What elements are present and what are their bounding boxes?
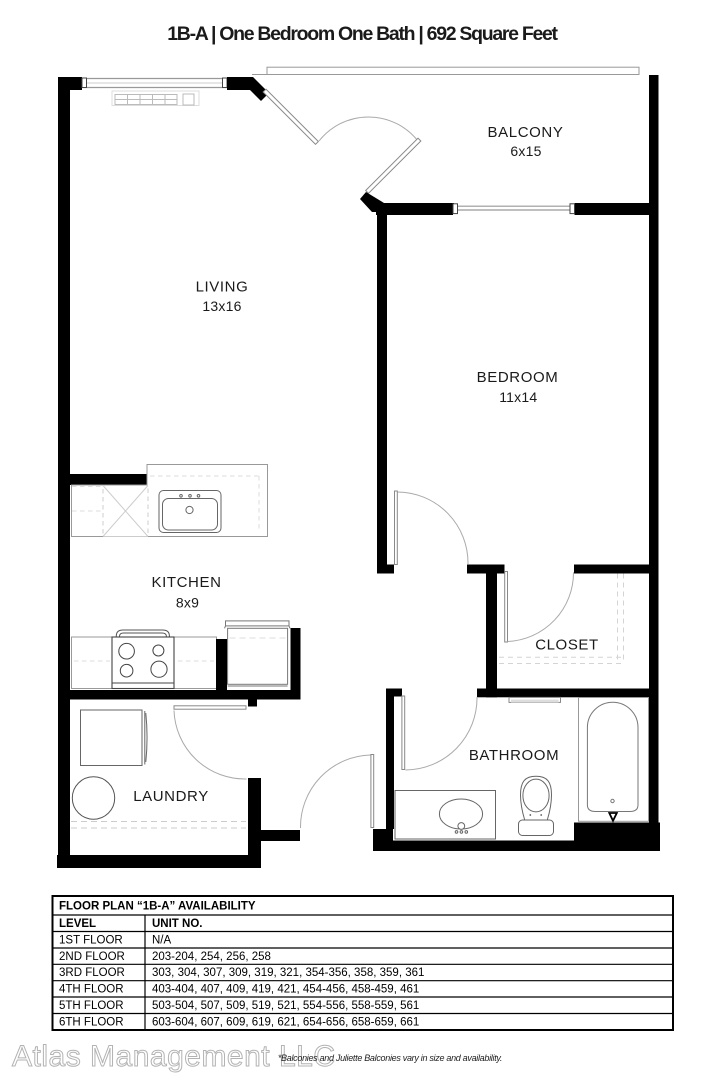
svg-text:LIVING: LIVING [196, 279, 249, 296]
svg-text:LEVEL: LEVEL [59, 918, 96, 930]
svg-text:UNIT NO.: UNIT NO. [152, 918, 202, 930]
svg-text:1ST FLOOR: 1ST FLOOR [59, 935, 123, 947]
svg-text:KITCHEN: KITCHEN [151, 574, 221, 591]
svg-text:6TH FLOOR: 6TH FLOOR [59, 1016, 124, 1028]
svg-text:*Balconies and Juliette Balcon: *Balconies and Juliette Balconies vary i… [278, 1053, 502, 1063]
svg-text:13x16: 13x16 [202, 298, 241, 314]
svg-text:5TH FLOOR: 5TH FLOOR [59, 1000, 124, 1012]
svg-text:BEDROOM: BEDROOM [477, 369, 559, 386]
svg-text:LAUNDRY: LAUNDRY [133, 788, 209, 805]
svg-text:203-204, 254, 256, 258: 203-204, 254, 256, 258 [152, 951, 271, 963]
svg-text:2ND FLOOR: 2ND FLOOR [59, 951, 125, 963]
svg-text:11x14: 11x14 [499, 389, 537, 405]
svg-text:4TH FLOOR: 4TH FLOOR [59, 984, 124, 996]
svg-text:BATHROOM: BATHROOM [469, 747, 559, 764]
svg-text:CLOSET: CLOSET [535, 637, 599, 654]
svg-text:403-404, 407, 409, 419, 421, 4: 403-404, 407, 409, 419, 421, 454-456, 45… [152, 984, 419, 996]
svg-text:603-604, 607, 609, 619, 621, 6: 603-604, 607, 609, 619, 621, 654-656, 65… [152, 1016, 419, 1028]
svg-text:3RD FLOOR: 3RD FLOOR [59, 967, 125, 979]
svg-text:BALCONY: BALCONY [488, 124, 564, 141]
svg-text:303, 304, 307, 309, 319, 321,: 303, 304, 307, 309, 319, 321, 354-356, 3… [152, 967, 424, 979]
svg-text:503-504, 507, 509, 519, 521, 5: 503-504, 507, 509, 519, 521, 554-556, 55… [152, 1000, 419, 1012]
svg-text:6x15: 6x15 [510, 143, 541, 159]
svg-text:1B-A | One Bedroom One Bath |: 1B-A | One Bedroom One Bath | 692 Square… [167, 23, 558, 45]
svg-text:N/A: N/A [152, 935, 172, 947]
svg-text:FLOOR PLAN “1B-A” AVAILABILITY: FLOOR PLAN “1B-A” AVAILABILITY [59, 901, 256, 913]
svg-text:8x9: 8x9 [176, 595, 199, 611]
